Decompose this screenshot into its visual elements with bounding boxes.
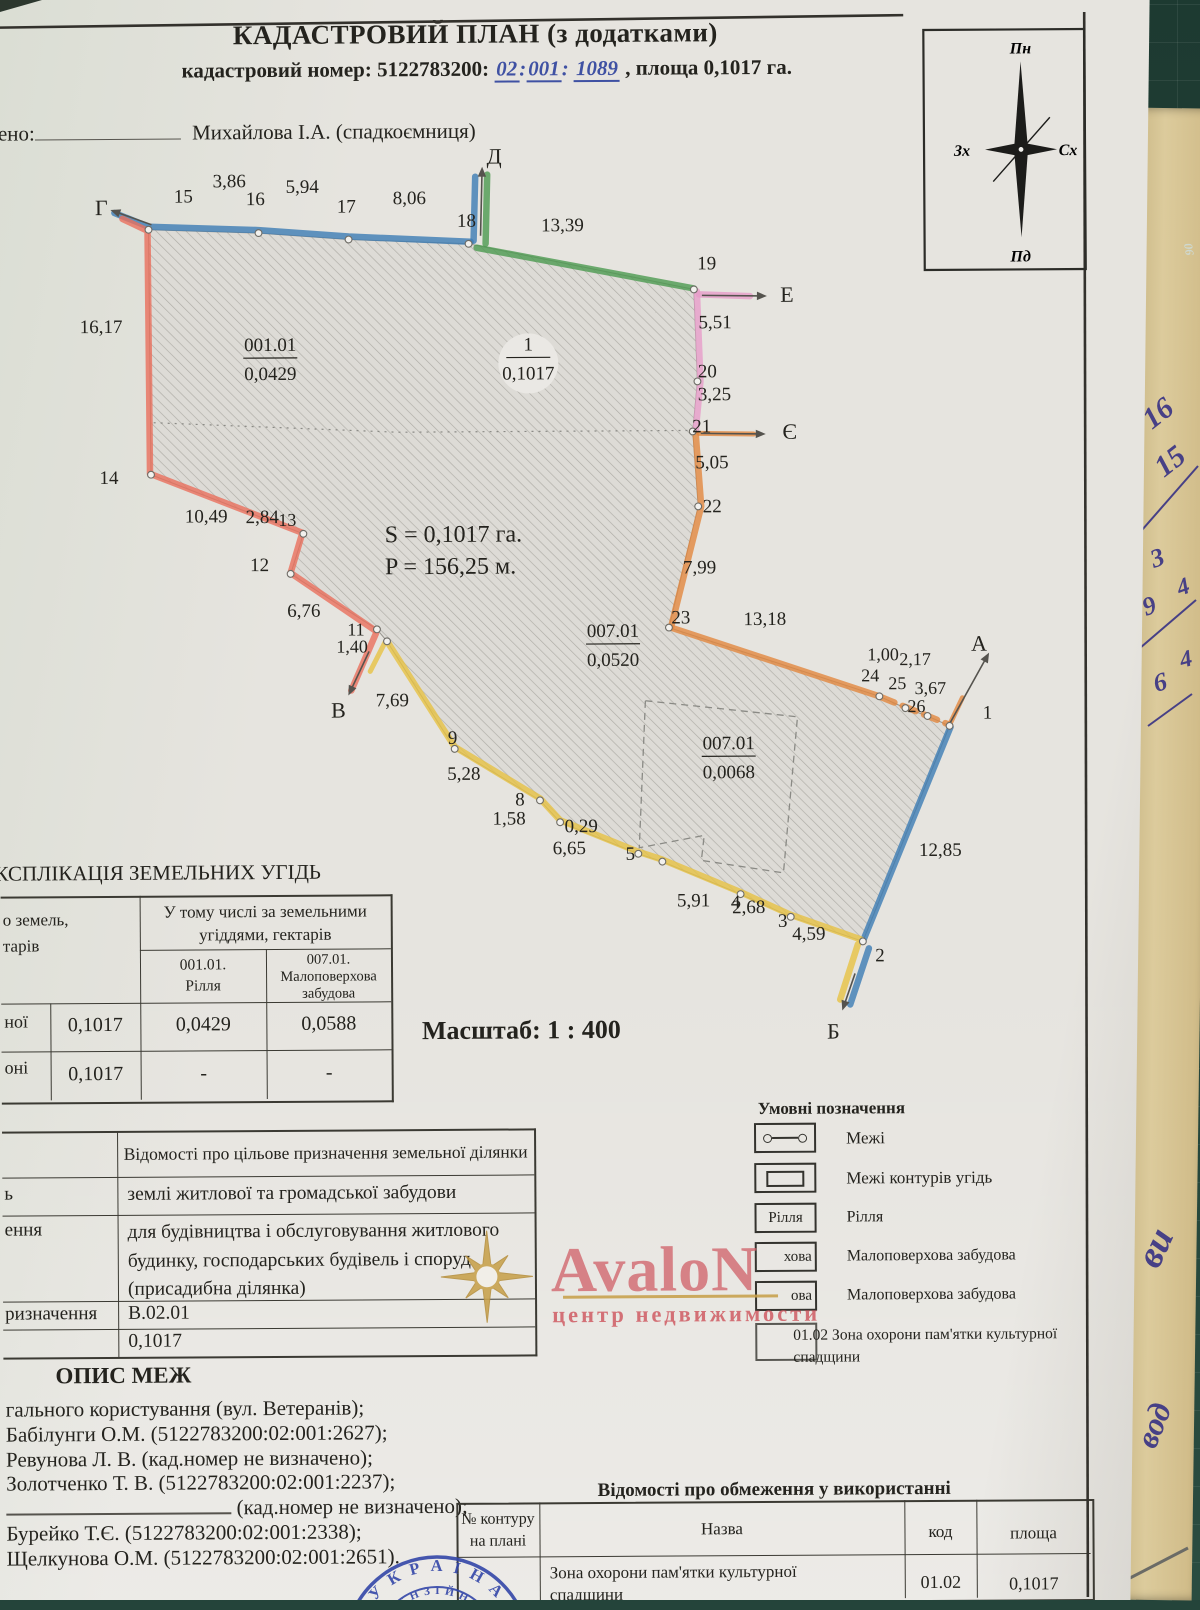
compass-needle-ns bbox=[1013, 61, 1028, 237]
svg-text:26: 26 bbox=[907, 696, 925, 716]
svg-text:5,05: 5,05 bbox=[695, 452, 728, 473]
svg-text:10,49: 10,49 bbox=[185, 506, 228, 527]
svg-text:2: 2 bbox=[875, 945, 885, 966]
explication-title: КСПЛІКАЦІЯ ЗЕМЕЛЬНИХ УГІДЬ bbox=[0, 860, 321, 887]
photo-of-cadastral-plan: { "header": { "title": "КАДАСТРОВИЙ ПЛАН… bbox=[0, 0, 1200, 1600]
svg-text:20: 20 bbox=[698, 361, 717, 382]
cadastral-number-line: кадастровий номер: 5122783200: 02:001: 1… bbox=[181, 55, 792, 84]
purpose-row2-label: ення bbox=[5, 1219, 43, 1241]
svg-text:Г: Г bbox=[95, 195, 108, 220]
owner-line: ено: Михайлова І.А. (спадкоємниця) bbox=[0, 119, 476, 147]
opys-line: Бабілунги О.М. (5122783200:02:001:2627); bbox=[6, 1419, 566, 1447]
restrictions-table: Відомості про обмеження у використанні №… bbox=[454, 1477, 1095, 1601]
svg-text:12,85: 12,85 bbox=[919, 840, 962, 861]
svg-text:001.01: 001.01 bbox=[244, 335, 296, 356]
handwritten-colon: : bbox=[519, 56, 526, 80]
compass-north-label: Пн bbox=[1009, 40, 1032, 57]
purpose-row3-value: В.02.01 bbox=[128, 1303, 190, 1325]
svg-text:007.01: 007.01 bbox=[587, 621, 639, 642]
svg-text:13,18: 13,18 bbox=[743, 609, 786, 630]
exp-row2-label: оні bbox=[5, 1057, 29, 1078]
avalon-brand-text: AvaloN bbox=[551, 1233, 759, 1305]
avalon-underline bbox=[563, 1296, 778, 1297]
legend-label-3: Рілля bbox=[847, 1208, 884, 1226]
svg-text:8,06: 8,06 bbox=[393, 188, 426, 209]
svg-text:1: 1 bbox=[523, 334, 533, 355]
svg-text:2,68: 2,68 bbox=[732, 897, 765, 918]
svg-text:2,84: 2,84 bbox=[246, 507, 280, 528]
compass-west-label: Зх bbox=[953, 143, 970, 160]
compass-south-label: Пд bbox=[1009, 248, 1031, 265]
restr-col1-header: № контуру на плані bbox=[456, 1508, 539, 1553]
restr-row-area: 0,1017 bbox=[977, 1573, 1091, 1595]
svg-text:3,67: 3,67 bbox=[915, 678, 947, 698]
svg-text:1: 1 bbox=[983, 703, 993, 724]
svg-text:19: 19 bbox=[697, 253, 716, 274]
compass-needle-ew bbox=[985, 142, 1057, 156]
handwritten-colon: : bbox=[562, 56, 569, 80]
svg-text:22: 22 bbox=[703, 496, 722, 517]
legend-symbol-lowrise-1: хова bbox=[755, 1242, 817, 1272]
svg-text:Є: Є bbox=[782, 419, 797, 444]
blank-line bbox=[35, 125, 181, 141]
svg-text:0,0068: 0,0068 bbox=[703, 762, 755, 783]
svg-text:3,86: 3,86 bbox=[213, 171, 246, 192]
svg-text:7,99: 7,99 bbox=[683, 557, 716, 578]
svg-text:Д: Д bbox=[486, 144, 501, 169]
exp-row2-c1: - bbox=[141, 1062, 267, 1086]
svg-text:S = 0,1017 га.: S = 0,1017 га. bbox=[385, 521, 523, 548]
exp-subhead-1: 001.01. Рілля bbox=[140, 954, 266, 997]
purpose-table: Відомості про цільове призначення земель… bbox=[2, 1128, 537, 1359]
cadastral-number-prefix: кадастровий номер: 5122783200: bbox=[181, 57, 489, 83]
exp-head-left: о земель, тарів bbox=[3, 907, 69, 959]
restr-row-code: 01.02 bbox=[905, 1572, 977, 1593]
svg-text:5,91: 5,91 bbox=[677, 890, 710, 911]
svg-text:5,28: 5,28 bbox=[447, 764, 480, 785]
opys-line: (кад.номер не визначено); bbox=[236, 1494, 467, 1519]
compass-needle-diagonal bbox=[993, 117, 1050, 181]
purpose-row1-label: ь bbox=[4, 1184, 13, 1206]
svg-text:1,00: 1,00 bbox=[867, 644, 899, 664]
restr-row-name: Зона охорони пам'ятки культурної спадщин… bbox=[550, 1561, 797, 1607]
svg-text:6,76: 6,76 bbox=[287, 601, 320, 622]
purpose-row2-value: для будівництва і обслуговування житлово… bbox=[128, 1217, 500, 1305]
svg-text:16: 16 bbox=[246, 189, 265, 210]
svg-text:6,65: 6,65 bbox=[553, 838, 586, 859]
exp-row2-total: 0,1017 bbox=[51, 1063, 141, 1087]
svg-text:23: 23 bbox=[671, 607, 690, 628]
handwritten-cad-1: 02 bbox=[494, 56, 519, 82]
issued-prefix: ено: bbox=[0, 121, 35, 145]
svg-text:13,39: 13,39 bbox=[541, 215, 584, 236]
svg-text:4: 4 bbox=[731, 892, 741, 913]
page-title: КАДАСТРОВИЙ ПЛАН (з додатками) bbox=[135, 17, 815, 52]
svg-text:0,29: 0,29 bbox=[564, 816, 597, 837]
restr-col4-header: площа bbox=[976, 1523, 1090, 1544]
svg-text:14: 14 bbox=[99, 468, 119, 489]
explication-table: КСПЛІКАЦІЯ ЗЕМЕЛЬНИХ УГІДЬ о земель, тар… bbox=[0, 857, 395, 1104]
purpose-row1-value: землі житлової та громадської забудови bbox=[127, 1182, 456, 1206]
legend-title: Умовні позначення bbox=[758, 1098, 905, 1119]
svg-text:21: 21 bbox=[692, 416, 711, 437]
compass-east-label: Сх bbox=[1059, 142, 1078, 159]
legend-label-1: Межі bbox=[846, 1128, 885, 1148]
svg-text:3,25: 3,25 bbox=[698, 384, 731, 405]
svg-text:12: 12 bbox=[250, 555, 269, 576]
svg-text:18: 18 bbox=[457, 211, 476, 232]
legend-label-5: Малоповерхова забудова bbox=[847, 1285, 1016, 1304]
svg-text:17: 17 bbox=[337, 196, 356, 217]
exp-subhead-2: 007.01. Малоповерхова забудова bbox=[266, 951, 391, 1003]
legend-symbol-lowrise-2: ова bbox=[755, 1281, 817, 1311]
svg-text:1,58: 1,58 bbox=[492, 808, 525, 829]
exp-row1-total: 0,1017 bbox=[50, 1014, 140, 1038]
svg-text:Е: Е bbox=[780, 282, 794, 307]
svg-text:2,17: 2,17 bbox=[899, 649, 931, 669]
exp-row2-c2: - bbox=[267, 1061, 392, 1085]
area-suffix: , площа 0,1017 га. bbox=[625, 55, 792, 80]
svg-text:9: 9 bbox=[448, 728, 458, 749]
handwritten-cad-3: 1089 bbox=[574, 56, 620, 82]
legend: Умовні позначення Межі Межі контурів угі… bbox=[746, 1093, 1104, 1387]
document-page: КАДАСТРОВИЙ ПЛАН (з додатками) кадастров… bbox=[0, 0, 1200, 1600]
svg-text:А: А bbox=[971, 631, 987, 656]
svg-text:007.01: 007.01 bbox=[702, 733, 754, 754]
svg-text:7,69: 7,69 bbox=[376, 690, 409, 711]
svg-text:5: 5 bbox=[626, 844, 636, 865]
legend-symbol-rillia: Рілля bbox=[754, 1203, 816, 1233]
exp-row1-c2: 0,0588 bbox=[266, 1012, 391, 1036]
legend-symbol-contours bbox=[754, 1163, 816, 1193]
purpose-row3-label: ризначення bbox=[5, 1303, 97, 1326]
legend-label-6: 01.02 Зона охорони пам'ятки культурної с… bbox=[793, 1323, 1103, 1369]
purpose-row4-value: 0,1017 bbox=[128, 1331, 182, 1353]
svg-text:0,0520: 0,0520 bbox=[587, 650, 639, 671]
svg-text:Б: Б bbox=[827, 1019, 840, 1044]
owner-name: Михайлова І.А. (спадкоємниця) bbox=[192, 119, 476, 145]
svg-text:15: 15 bbox=[174, 186, 193, 207]
svg-text:1,40: 1,40 bbox=[336, 636, 368, 656]
opys-line: Ревунова Л. В. (кад.номер не визначено); bbox=[6, 1444, 566, 1472]
svg-text:Масштаб: 1 : 400: Масштаб: 1 : 400 bbox=[422, 1015, 621, 1045]
opys-line: гального користування (вул. Ветеранів); bbox=[6, 1394, 566, 1422]
svg-text:В: В bbox=[331, 698, 346, 723]
svg-text:24: 24 bbox=[861, 665, 879, 685]
handwritten-cad-2: 001 bbox=[526, 56, 562, 82]
svg-text:16,17: 16,17 bbox=[80, 317, 123, 338]
svg-text:13: 13 bbox=[278, 510, 296, 530]
opys-title: ОПИС МЕЖ bbox=[55, 1360, 565, 1389]
svg-text:11: 11 bbox=[347, 619, 364, 639]
svg-text:4,59: 4,59 bbox=[792, 924, 825, 945]
svg-text:5,94: 5,94 bbox=[286, 177, 320, 198]
compass-rose: Пн Пд Зх Сх bbox=[923, 29, 1085, 270]
restr-col2-header: Назва bbox=[539, 1518, 904, 1540]
svg-text:25: 25 bbox=[888, 673, 906, 693]
svg-text:8: 8 bbox=[515, 789, 525, 810]
svg-text:3: 3 bbox=[778, 911, 788, 932]
exp-row1-c1: 0,0429 bbox=[140, 1013, 266, 1037]
legend-label-4: Малоповерхова забудова bbox=[847, 1246, 1016, 1265]
svg-text:P = 156,25 м.: P = 156,25 м. bbox=[385, 554, 516, 581]
restr-col3-header: код bbox=[904, 1522, 976, 1542]
legend-label-2: Межі контурів угідь bbox=[846, 1168, 992, 1189]
exp-row1-label: ної bbox=[4, 1011, 28, 1032]
svg-text:0,1017: 0,1017 bbox=[502, 363, 554, 384]
purpose-header: Відомості про цільове призначення земель… bbox=[117, 1141, 534, 1165]
compass-hub bbox=[1019, 147, 1024, 152]
svg-text:0,0429: 0,0429 bbox=[244, 364, 296, 385]
legend-symbol-boundary bbox=[754, 1123, 816, 1153]
exp-head-group: У тому числі за земельними угіддями, гек… bbox=[140, 899, 391, 947]
svg-text:5,51: 5,51 bbox=[698, 312, 731, 333]
